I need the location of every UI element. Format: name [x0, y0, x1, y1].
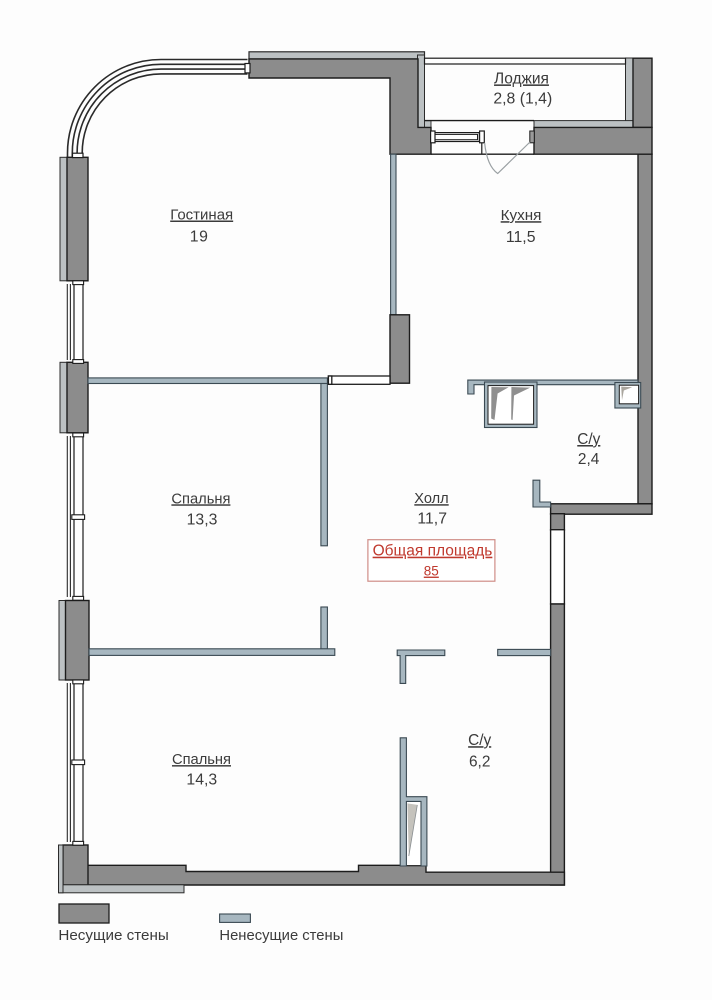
svg-text:Ненесущие стены: Ненесущие стены [219, 928, 343, 944]
svg-text:2,8 (1,4): 2,8 (1,4) [493, 91, 552, 108]
svg-text:Холл: Холл [414, 491, 448, 507]
svg-text:6,2: 6,2 [469, 753, 490, 770]
svg-text:85: 85 [424, 564, 439, 579]
svg-text:Несущие стены: Несущие стены [58, 927, 168, 944]
svg-text:Кухня: Кухня [501, 207, 542, 224]
svg-text:19: 19 [190, 228, 209, 245]
svg-text:С/у: С/у [577, 431, 600, 448]
svg-text:11,7: 11,7 [417, 511, 447, 528]
svg-text:Спальня: Спальня [171, 491, 230, 507]
svg-text:2,4: 2,4 [578, 451, 600, 468]
svg-text:Лоджия: Лоджия [494, 70, 549, 87]
svg-text:11,5: 11,5 [506, 229, 536, 246]
svg-text:Гостиная: Гостиная [170, 207, 233, 224]
svg-text:Спальня: Спальня [172, 752, 231, 768]
svg-text:13,3: 13,3 [187, 511, 218, 528]
svg-text:С/у: С/у [468, 732, 491, 749]
svg-text:Общая площадь: Общая площадь [373, 543, 493, 560]
svg-text:14,3: 14,3 [186, 771, 217, 788]
